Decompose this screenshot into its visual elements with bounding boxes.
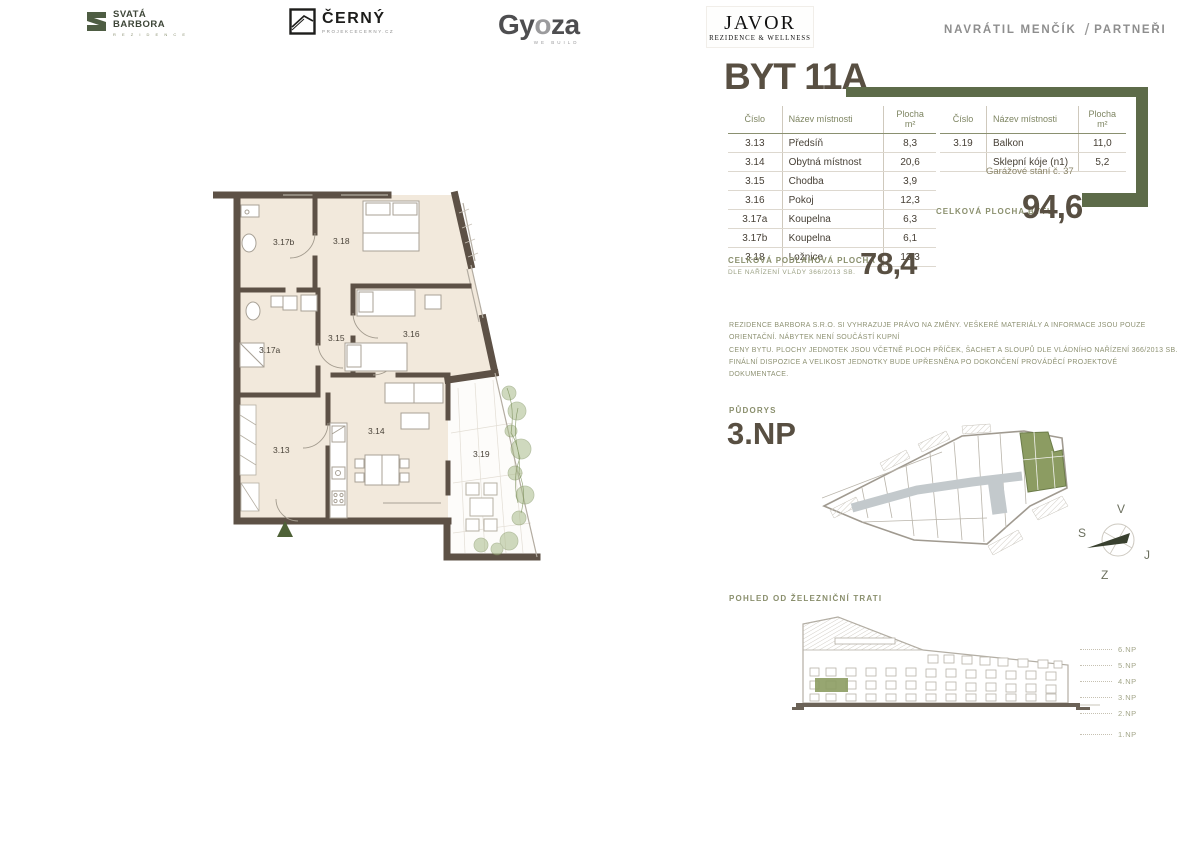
room-label-313: 3.13 <box>273 445 290 455</box>
floor-label-6np: 6.NP <box>1080 645 1137 654</box>
compass-south: J <box>1144 548 1150 562</box>
room-label-315: 3.15 <box>328 333 345 343</box>
compass-east: V <box>1117 502 1125 516</box>
slash-glyph: / <box>1085 20 1092 40</box>
compass: V S J Z <box>1070 495 1190 587</box>
javor-name: JAVOR <box>724 13 796 33</box>
table-row: 3.14Obytná místnost20,6 <box>728 153 936 172</box>
table-row: 3.17aKoupelna6,3 <box>728 210 936 229</box>
logo-cerny: ČERNÝ PROJEKCECERNY.CZ <box>289 8 394 35</box>
leader-line <box>1080 697 1112 698</box>
barbora-sub: R E Z I D E N C E <box>113 32 188 37</box>
logo-navratil-mencik: NAVRÁTIL MENČÍK / PARTNEŘI <box>944 20 1167 40</box>
floor-area-value: 78,4 <box>860 246 916 282</box>
ground-line <box>792 703 1100 710</box>
logo-javor: JAVOR REZIDENCE & WELLNESS <box>706 6 814 48</box>
room-table-right: Číslo Název místnosti Plocha m² 3.19Balk… <box>940 106 1126 172</box>
barbora-line2: BARBORA <box>113 20 188 30</box>
leader-line <box>1080 681 1112 682</box>
elevation-section-label: POHLED OD ŽELEZNIČNÍ TRATI <box>729 594 882 603</box>
col-header: Název místnosti <box>986 106 1078 134</box>
compass-west: Z <box>1101 568 1108 582</box>
table-row: 3.19Balkon11,0 <box>940 134 1126 153</box>
leader-line <box>1080 649 1112 650</box>
room-label-317a: 3.17a <box>259 345 281 355</box>
bracket-top-bar <box>846 87 1148 97</box>
floor-area-label: CELKOVÁ PODLAHOVÁ PLOCHA <box>728 256 876 265</box>
kitchen <box>330 423 347 518</box>
leader-line <box>1080 734 1112 735</box>
javor-sub: REZIDENCE & WELLNESS <box>709 35 811 42</box>
roof-hatch <box>803 617 923 650</box>
site-floor-label: 3.NP <box>727 416 796 452</box>
total-area-value: 94,6 <box>1022 188 1082 226</box>
wardrobe <box>240 405 259 511</box>
floor-label-2np: 2.NP <box>1080 709 1137 718</box>
col-header: Plocha m² <box>1078 106 1126 134</box>
elevation-highlight <box>815 678 848 692</box>
footer-logos: SVATÁ BARBORA R E Z I D E N C E ČERNÝ PR… <box>0 0 1200 60</box>
apartment-floorplan: 3.17b 3.18 3.15 3.16 3.17a 3.13 3.14 3.1… <box>213 183 558 578</box>
floor-label-3np: 3.NP <box>1080 693 1137 702</box>
floor-area-sublabel: DLE NAŘÍZENÍ VLÁDY 366/2013 SB. <box>728 269 856 276</box>
floor-label-1np: 1.NP <box>1080 730 1137 739</box>
room-label-317b: 3.17b <box>273 237 295 247</box>
site-plan <box>822 418 1092 576</box>
bracket-bottom-bar <box>1082 193 1148 207</box>
col-header: Číslo <box>728 106 782 134</box>
table-row: 3.13Předsíň8,3 <box>728 134 936 153</box>
logo-gyoza: Gyoza WE BUILD <box>498 11 580 45</box>
compass-needle <box>1087 533 1130 548</box>
elevation-drawing <box>790 610 1100 740</box>
col-header: Číslo <box>940 106 986 134</box>
site-section-label: PŮDORYS <box>729 406 777 415</box>
leader-line <box>1080 665 1112 666</box>
navratil-name: NAVRÁTIL MENČÍK <box>944 24 1077 36</box>
gyoza-sub: WE BUILD <box>498 40 580 45</box>
gyoza-name: Gyoza <box>498 11 580 39</box>
plan-sheet: 3.17b 3.18 3.15 3.16 3.17a 3.13 3.14 3.1… <box>0 0 1200 848</box>
room-label-316: 3.16 <box>403 329 420 339</box>
table-row: 3.16Pokoj12,3 <box>728 191 936 210</box>
cerny-icon <box>289 8 316 35</box>
col-header: Plocha m² <box>884 106 936 134</box>
cerny-name: ČERNÝ <box>322 10 394 28</box>
room-label-319: 3.19 <box>473 449 490 459</box>
room-label-314: 3.14 <box>368 426 385 436</box>
room-label-318: 3.18 <box>333 236 350 246</box>
garage-note: Garážové stání č. 37 <box>986 166 1074 177</box>
svata-barbora-icon <box>86 10 108 34</box>
cerny-sub: PROJEKCECERNY.CZ <box>322 29 394 34</box>
navratil-partner: PARTNEŘI <box>1094 24 1166 36</box>
room-table-left: Číslo Název místnosti Plocha m² 3.13Před… <box>728 106 936 267</box>
table-row: 3.17bKoupelna6,1 <box>728 229 936 248</box>
compass-north: S <box>1078 526 1086 540</box>
bracket-right-bar <box>1136 87 1148 207</box>
col-header: Název místnosti <box>782 106 884 134</box>
floor-label-4np: 4.NP <box>1080 677 1137 686</box>
leader-line <box>1080 713 1112 714</box>
table-row: 3.15Chodba3,9 <box>728 172 936 191</box>
floor-label-5np: 5.NP <box>1080 661 1137 670</box>
logo-svata-barbora: SVATÁ BARBORA R E Z I D E N C E <box>86 10 188 37</box>
disclaimer-text: REZIDENCE BARBORA S.R.O. SI VYHRAZUJE PR… <box>729 320 1179 381</box>
bed-double <box>363 201 419 251</box>
